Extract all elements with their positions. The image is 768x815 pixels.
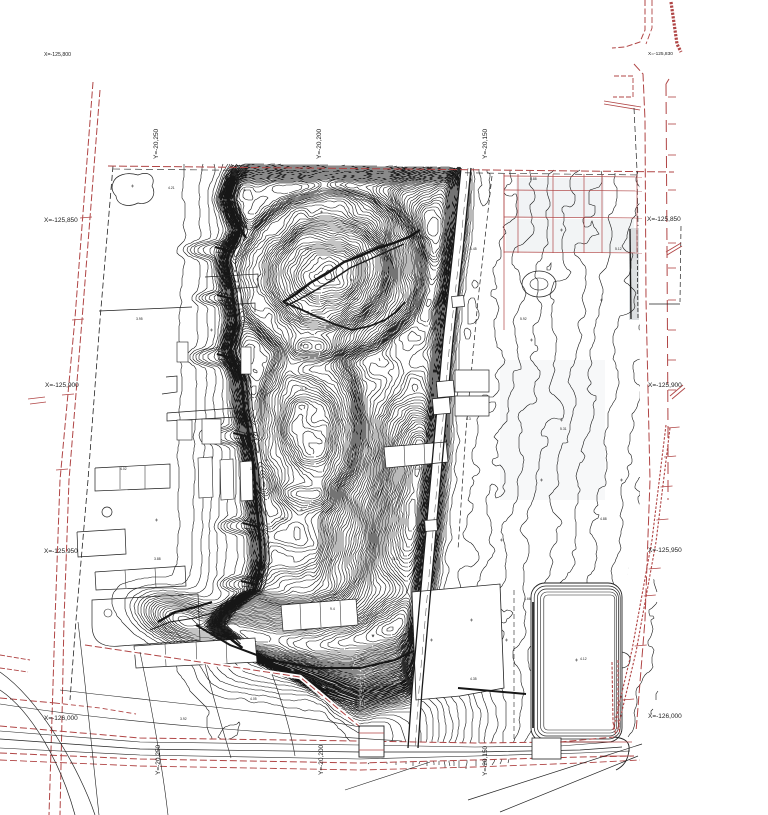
svg-text:6.2: 6.2 [360,657,365,661]
svg-text:21.5: 21.5 [300,387,307,391]
svg-text:4.02: 4.02 [120,467,127,471]
svg-text:3.95: 3.95 [136,317,143,321]
svg-text:X=-125,800: X=-125,800 [44,52,71,58]
svg-text:5.88: 5.88 [530,177,537,181]
svg-text:Y=-20,250: Y=-20,250 [153,128,160,159]
svg-text:8.3: 8.3 [466,417,471,421]
svg-text:28.1: 28.1 [352,297,359,301]
svg-text:18.9: 18.9 [430,327,437,331]
svg-text:11.2: 11.2 [392,557,398,561]
svg-text:5.12: 5.12 [615,247,622,251]
svg-text:3.92: 3.92 [180,717,187,721]
svg-text:X=-125,830: X=-125,830 [648,51,673,57]
svg-text:Y=-20,150: Y=-20,150 [482,745,489,776]
svg-text:28.4: 28.4 [305,247,312,251]
svg-text:14.7: 14.7 [415,467,422,471]
svg-text:5.92: 5.92 [520,317,527,321]
svg-text:4.88: 4.88 [600,517,607,521]
svg-text:15.2: 15.2 [280,517,287,521]
svg-text:9.4: 9.4 [330,607,335,611]
svg-text:X=-125,900: X=-125,900 [648,382,682,389]
svg-text:3.88: 3.88 [154,557,161,561]
svg-text:X=-125,950: X=-125,950 [648,547,682,554]
svg-text:Y=-20,200: Y=-20,200 [316,128,323,159]
svg-text:4.05: 4.05 [250,697,257,701]
svg-text:12.6: 12.6 [250,467,257,471]
svg-text:X=-125,850: X=-125,850 [647,216,681,223]
svg-text:4.21: 4.21 [168,186,175,190]
svg-text:6.45: 6.45 [470,247,477,251]
svg-text:Y=-20,150: Y=-20,150 [482,128,489,159]
svg-text:4.12: 4.12 [580,657,587,661]
svg-text:5.31: 5.31 [560,427,567,431]
svg-text:4.66: 4.66 [524,597,531,601]
svg-text:X=-126,000: X=-126,000 [648,713,682,720]
svg-text:Y=-20,200: Y=-20,200 [318,744,325,775]
svg-text:4.35: 4.35 [470,677,477,681]
svg-text:X=-126,000: X=-126,000 [44,715,78,722]
svg-text:X=-125,850: X=-125,850 [44,217,78,224]
svg-text:26.2: 26.2 [392,209,399,213]
svg-text:X=-125,950: X=-125,950 [44,548,78,555]
svg-text:X=-125,900: X=-125,900 [45,382,79,389]
